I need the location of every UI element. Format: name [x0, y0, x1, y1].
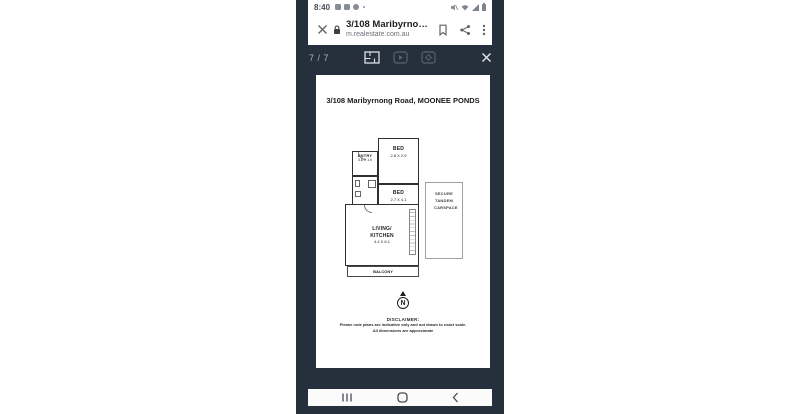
disclaimer: DISCLAIMER: Please note plans are indica… [316, 317, 490, 335]
share-button[interactable] [459, 24, 471, 36]
mute-icon [451, 4, 458, 11]
close-tab-button[interactable] [314, 24, 330, 35]
compass-north-arrow [400, 291, 406, 296]
virtual-tour-tab-button[interactable] [421, 51, 436, 64]
compass-north-label: N [397, 297, 409, 309]
home-button[interactable] [397, 392, 408, 403]
share-icon [459, 24, 471, 36]
room-bed-1: BED 2.8 X 2.9 [378, 138, 419, 184]
recents-icon [341, 393, 353, 402]
floorplan-tab-button[interactable] [364, 51, 380, 64]
bookmark-icon [438, 24, 448, 36]
recents-button[interactable] [341, 393, 353, 402]
close-icon [481, 52, 492, 63]
notification-dot [363, 6, 365, 8]
vanity-fixture [355, 191, 361, 197]
bookmark-button[interactable] [438, 24, 448, 36]
android-nav-bar [308, 389, 492, 406]
floorplan-image[interactable]: 3/108 Maribyrnong Road, MOONEE PONDS BED… [316, 75, 490, 368]
room-dims: 4.4 X 6.1 [346, 239, 418, 244]
clock: 8:40 [314, 3, 330, 12]
photo-counter: 7 / 7 [309, 53, 329, 63]
lock-icon [333, 25, 341, 35]
chrome-icon [353, 4, 359, 10]
floorplan-icon [364, 51, 380, 64]
page-url: m.realestate.com.au [346, 31, 432, 39]
room-living-kitchen: LIVING/ KITCHEN 4.4 X 6.1 [345, 204, 419, 266]
status-left: 8:40 [314, 3, 365, 12]
room-dims: 2.7 X 4.1 [379, 197, 418, 202]
video-icon [393, 51, 408, 64]
media-type-tabs [364, 51, 436, 64]
virtual-tour-icon [421, 51, 436, 64]
room-bathroom [352, 176, 378, 206]
back-button[interactable] [452, 392, 459, 403]
browser-header: 3/108 Maribyrno… m.realestate.com.au [308, 14, 492, 45]
room-name: SECURE TANDEM CARSPACE [426, 191, 462, 211]
overflow-menu-icon [482, 24, 486, 36]
gallery-icon [335, 4, 341, 10]
room-balcony: BALCONY [347, 266, 419, 277]
video-icon [344, 4, 350, 10]
disclaimer-line-2: All dimensions are approximate [316, 328, 490, 334]
header-actions [438, 24, 486, 36]
close-icon [317, 24, 328, 35]
room-carspace: SECURE TANDEM CARSPACE [425, 182, 463, 259]
room-name: BALCONY [348, 267, 418, 276]
room-dims: 2.8 X 2.9 [379, 153, 418, 158]
shower-fixture [368, 180, 376, 188]
gallery-toolbar: 7 / 7 [296, 45, 504, 70]
home-icon [397, 392, 408, 403]
door-arc [364, 205, 372, 213]
page-title: 3/108 Maribyrno… [346, 20, 432, 31]
compass: N [397, 291, 409, 309]
signal-icon [472, 4, 479, 11]
floorplan-drawing: BED 2.8 X 2.9 ENTRY 3.8 X 1.0 [344, 138, 464, 279]
back-icon [452, 392, 459, 403]
floorplan-address-title: 3/108 Maribyrnong Road, MOONEE PONDS [316, 96, 490, 105]
status-right [451, 3, 486, 11]
page-title-block: 3/108 Maribyrno… m.realestate.com.au [346, 20, 432, 39]
battery-icon [482, 3, 486, 11]
phone-screen: 8:40 [296, 0, 504, 414]
status-bar: 8:40 [308, 0, 492, 14]
kitchen-bench [409, 209, 416, 255]
wifi-icon [461, 4, 469, 11]
video-tab-button[interactable] [393, 51, 408, 64]
overflow-menu-button[interactable] [482, 24, 486, 36]
close-gallery-button[interactable] [481, 52, 492, 63]
toilet-fixture [355, 180, 360, 187]
